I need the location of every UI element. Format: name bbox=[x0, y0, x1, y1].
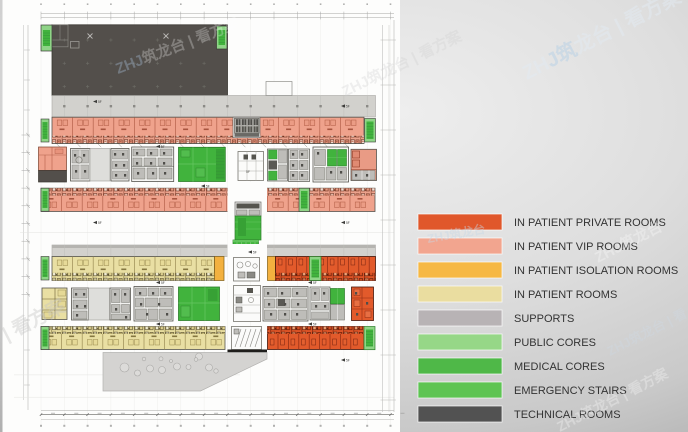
svg-text:5F: 5F bbox=[253, 251, 257, 255]
svg-text:5F: 5F bbox=[313, 323, 317, 327]
svg-text:5F: 5F bbox=[98, 221, 102, 225]
svg-text:5F: 5F bbox=[313, 281, 317, 285]
svg-text:MEDICAL CORES: MEDICAL CORES bbox=[514, 361, 605, 373]
svg-text:5F: 5F bbox=[346, 221, 350, 225]
svg-text:5F: 5F bbox=[346, 105, 350, 109]
svg-text:SUPPORTS: SUPPORTS bbox=[514, 313, 574, 325]
svg-text:5F: 5F bbox=[161, 145, 165, 149]
svg-text:5F: 5F bbox=[98, 100, 102, 104]
svg-text:PUBLIC CORES: PUBLIC CORES bbox=[514, 337, 596, 349]
svg-text:IN PATIENT ROOMS: IN PATIENT ROOMS bbox=[514, 289, 617, 301]
svg-text:5F: 5F bbox=[346, 359, 350, 363]
svg-text:5F: 5F bbox=[206, 185, 210, 189]
svg-text:5F: 5F bbox=[246, 170, 250, 174]
svg-text:5F: 5F bbox=[161, 323, 165, 327]
svg-text:5F: 5F bbox=[161, 281, 165, 285]
svg-text:IN PATIENT ISOLATION ROOMS: IN PATIENT ISOLATION ROOMS bbox=[514, 265, 678, 277]
